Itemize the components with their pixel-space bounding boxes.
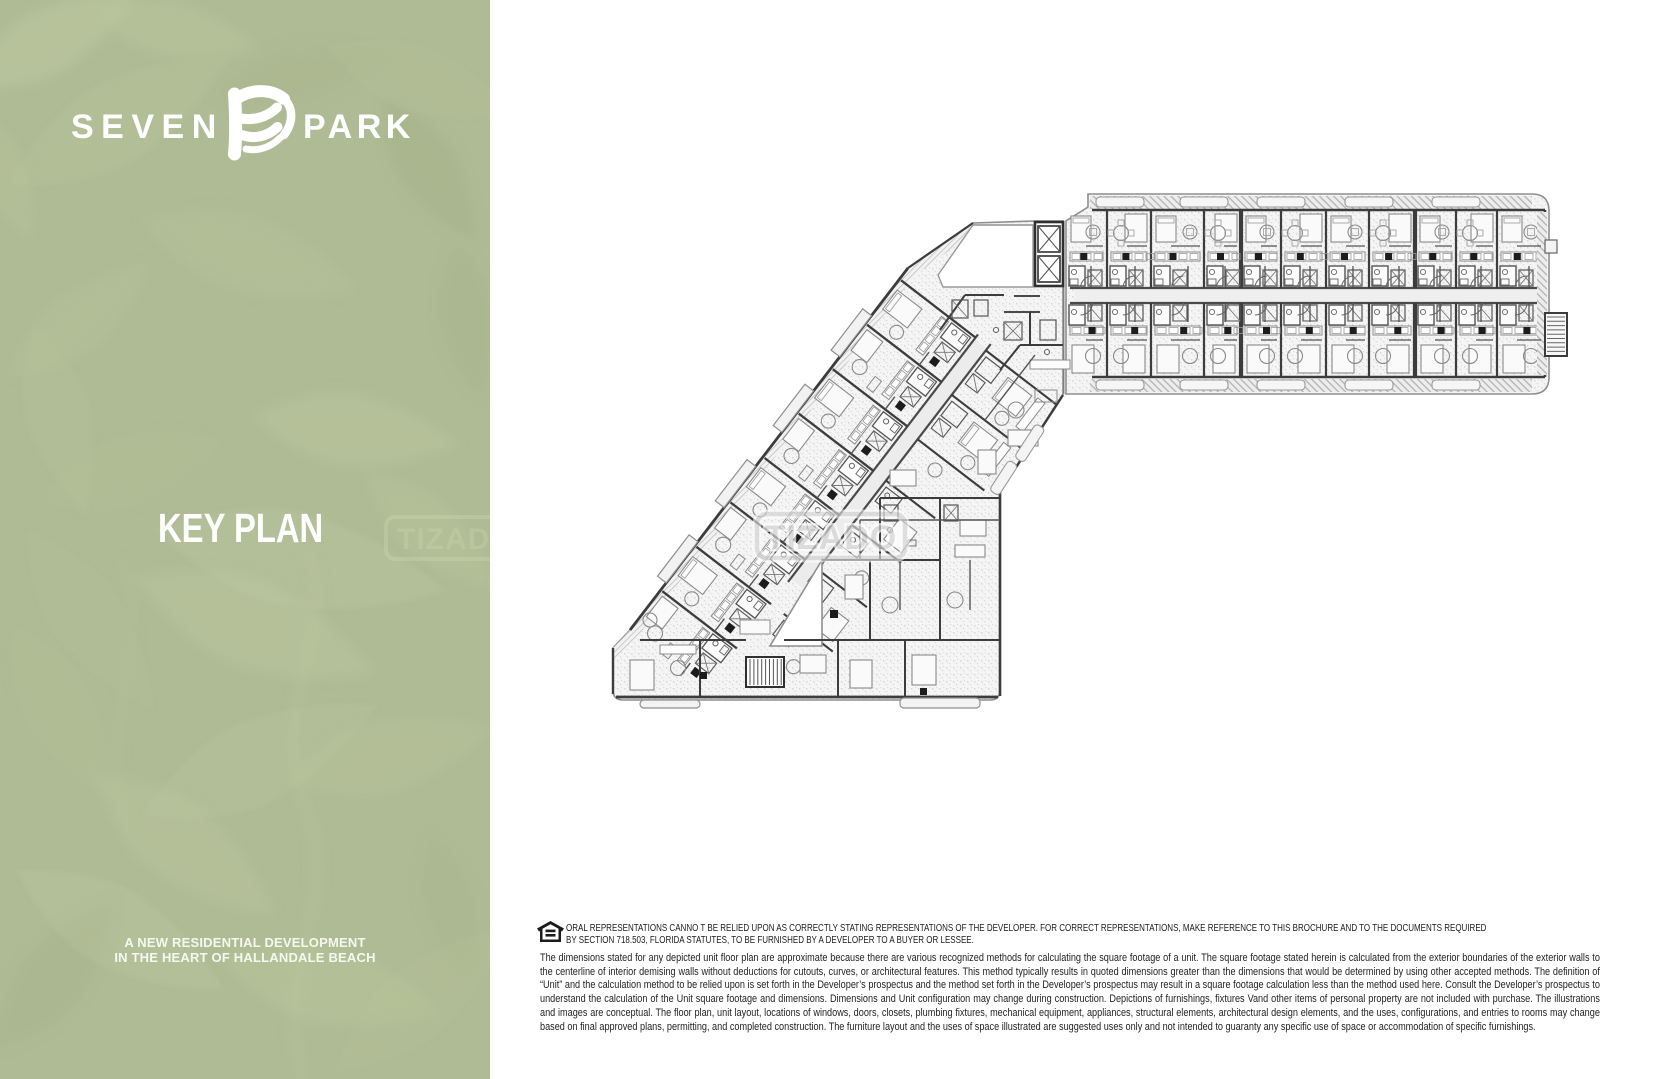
svg-text:TIZADO: TIZADO [765,519,898,557]
